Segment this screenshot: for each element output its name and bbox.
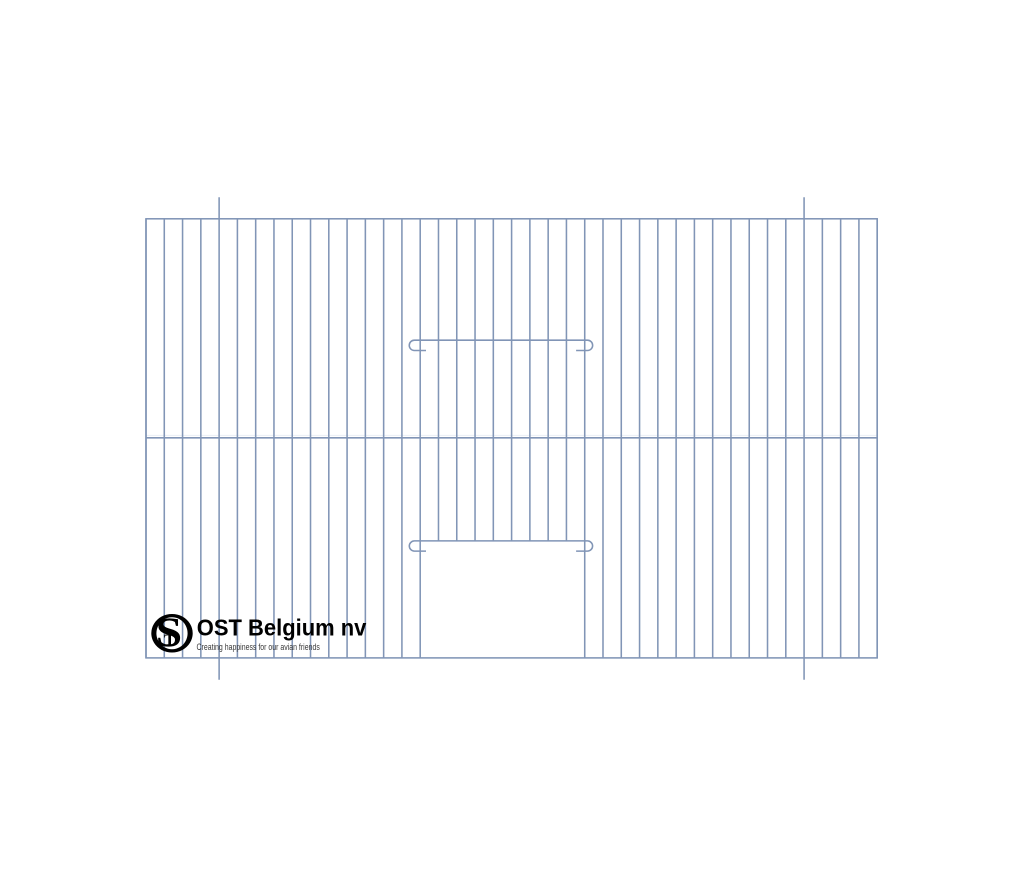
svg-text:Creating happiness for our avi: Creating happiness for our avian friends (197, 642, 321, 652)
svg-text:OST Belgium nv: OST Belgium nv (197, 614, 367, 640)
